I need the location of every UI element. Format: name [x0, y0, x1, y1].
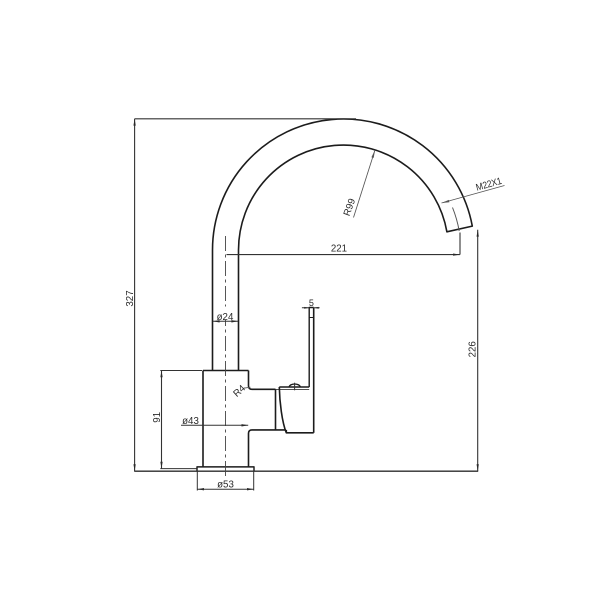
svg-text:5: 5 [309, 298, 314, 308]
svg-text:91: 91 [152, 412, 163, 423]
svg-text:226: 226 [468, 341, 479, 357]
svg-text:ø43: ø43 [182, 416, 199, 427]
svg-text:ø24: ø24 [217, 312, 234, 323]
svg-text:ø53: ø53 [217, 479, 234, 490]
svg-text:327: 327 [125, 290, 136, 306]
svg-text:221: 221 [331, 244, 347, 255]
